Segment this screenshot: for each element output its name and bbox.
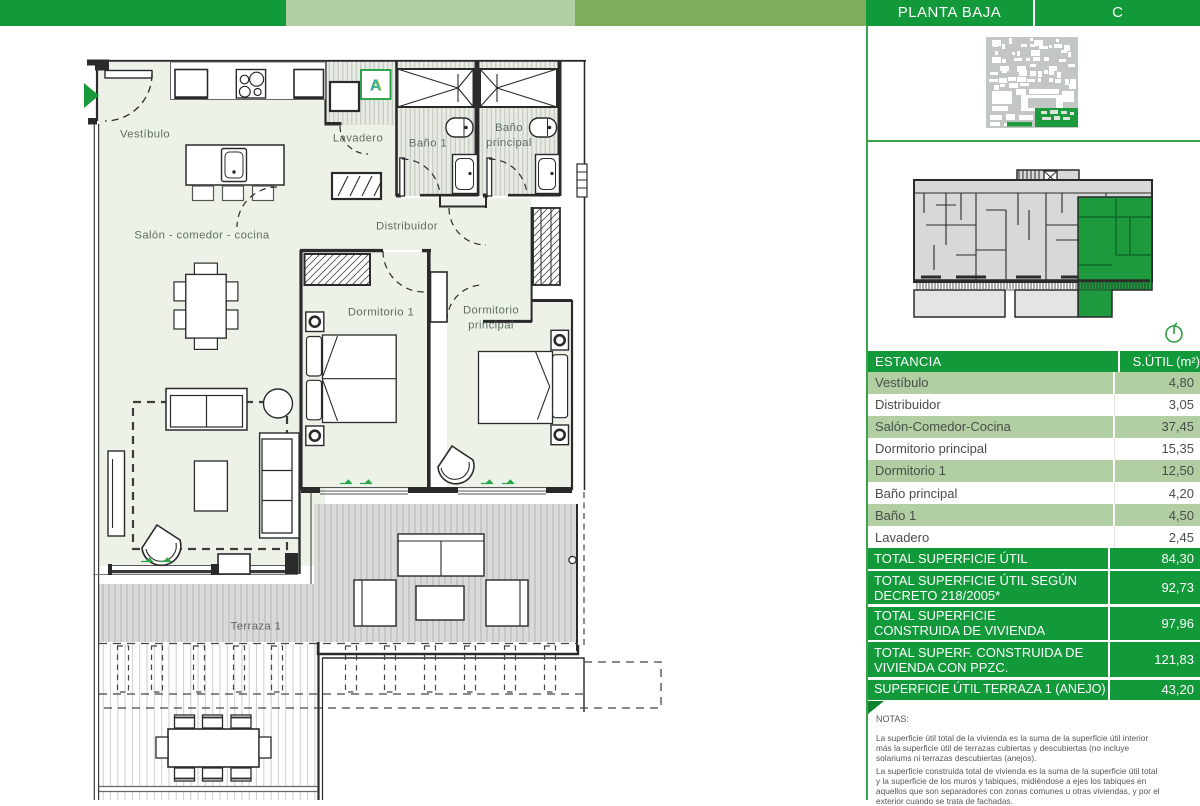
svg-text:Lavadero: Lavadero: [333, 133, 383, 145]
svg-text:principal: principal: [468, 320, 514, 332]
svg-text:A: A: [370, 78, 382, 95]
svg-text:Dormitorio: Dormitorio: [463, 305, 519, 317]
svg-text:Terraza 1: Terraza 1: [231, 621, 282, 633]
svg-text:Salón - comedor - cocina: Salón - comedor - cocina: [134, 230, 269, 242]
svg-text:Distribuidor: Distribuidor: [376, 221, 438, 233]
svg-text:Baño 1: Baño 1: [409, 138, 447, 150]
svg-text:Vestíbulo: Vestíbulo: [120, 129, 170, 141]
svg-text:Baño: Baño: [495, 122, 523, 134]
svg-text:Dormitorio 1: Dormitorio 1: [348, 307, 414, 319]
svg-text:principal: principal: [486, 137, 532, 149]
